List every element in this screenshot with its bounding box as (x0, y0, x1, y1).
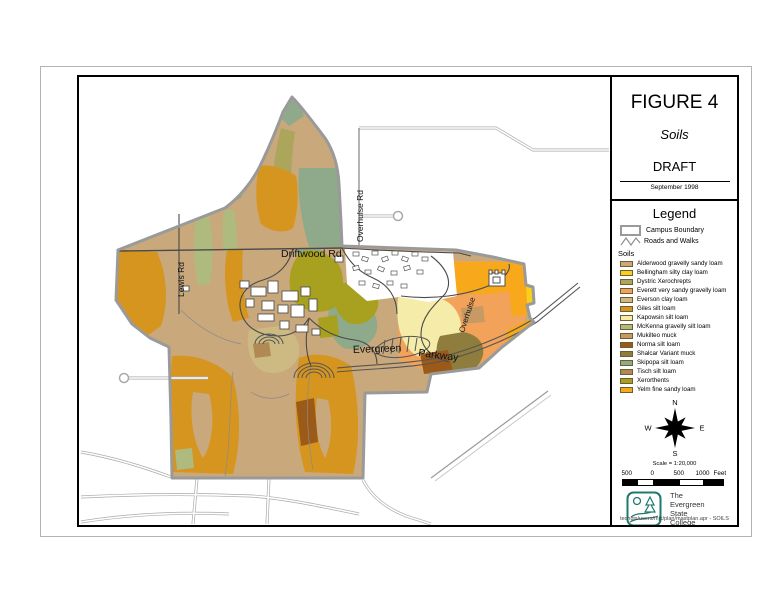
side-panel: FIGURE 4 Soils DRAFT September 1998 Lege… (610, 77, 737, 525)
legend-soil-label: Everson clay loam (637, 296, 688, 303)
logo-line: The (670, 491, 705, 500)
campus-boundary-label: Campus Boundary (646, 227, 704, 234)
legend-soil-swatch (620, 360, 633, 366)
housing-area (345, 249, 457, 302)
soil-patch-mckenna (223, 210, 238, 252)
legend-soil-swatch (620, 342, 633, 348)
legend-soil-row: Kapowsin silt loam (612, 313, 737, 322)
soil-patch-mckenna (194, 212, 212, 286)
date-divider (620, 181, 730, 182)
figure-subtitle: Soils (612, 127, 737, 142)
figure-date: September 1998 (612, 184, 737, 191)
legend-soil-swatch (620, 315, 633, 321)
legend-campus-boundary-row: Campus Boundary (612, 225, 737, 236)
soil-patch-mckenna (175, 448, 194, 470)
page-sheet: Driftwood Rd Overhulse Rd Lewis Rd Overh… (40, 66, 752, 537)
legend-soil-label: Tisch silt loam (637, 368, 676, 375)
legend-soil-label: Xerorthents (637, 377, 669, 384)
scalebar-label: 500 (622, 470, 633, 477)
soil-patch-giles (115, 250, 166, 336)
legend-soil-label: Alderwood gravelly sandy loam (637, 260, 723, 267)
legend-soil-swatch (620, 306, 633, 312)
legend-soil-row: Tisch silt loam (612, 367, 737, 376)
legend-soil-row: Norma silt loam (612, 340, 737, 349)
legend-block: Legend Campus Boundary Roads and Walks S… (612, 206, 737, 394)
legend-soil-label: Giles silt loam (637, 305, 676, 312)
soil-patch-giles (256, 165, 297, 231)
logo-line: Evergreen (670, 500, 705, 509)
scalebar-segments (622, 479, 724, 486)
legend-soil-swatch (620, 351, 633, 357)
legend-soil-swatch (620, 270, 633, 276)
legend-soil-row: Shalcar Variant muck (612, 349, 737, 358)
legend-soil-label: Yelm fine sandy loam (637, 386, 696, 393)
legend-soil-label: Kapowsin silt loam (637, 314, 688, 321)
campus-boundary-swatch (620, 225, 641, 236)
legend-soil-label: Dystric Xerochrepts (637, 278, 691, 285)
draft-status: DRAFT (612, 159, 737, 174)
legend-soil-label: Skipopa silt loam (637, 359, 684, 366)
legend-soil-label: Everett very sandy gravelly loam (637, 287, 726, 294)
compass-rose: N W E S (630, 396, 720, 458)
tower-icon (489, 270, 505, 286)
compass-e: E (699, 424, 704, 433)
soil-patch-yelm (509, 288, 529, 316)
legend-soil-swatch (620, 288, 633, 294)
legend-soil-row: Alderwood gravelly sandy loam (612, 259, 737, 268)
soils-map-svg: Driftwood Rd Overhulse Rd Lewis Rd Overh… (79, 77, 610, 525)
compass-n: N (672, 398, 677, 407)
scalebar-label: 1000 (696, 470, 710, 477)
label-evergreen: Evergreen (353, 342, 402, 356)
legend-soil-swatch (620, 369, 633, 375)
cul-de-sac (120, 374, 129, 383)
roads-zigzag-icon (620, 237, 641, 246)
figure-title: FIGURE 4 (612, 77, 737, 114)
legend-soil-swatch (620, 279, 633, 285)
scalebar-label: 500 (674, 470, 685, 477)
legend-soil-swatch (620, 387, 633, 393)
scalebar-unit: Feet (714, 470, 727, 477)
title-block: FIGURE 4 Soils DRAFT September 1998 (612, 77, 737, 201)
compass-s: S (672, 449, 677, 458)
soils-map: Driftwood Rd Overhulse Rd Lewis Rd Overh… (79, 77, 610, 525)
label-driftwood: Driftwood Rd (281, 248, 342, 260)
label-overhulse-rd: Overhulse Rd (355, 190, 365, 242)
legend-soil-row: Xerorthents (612, 376, 737, 385)
legend-soil-row: Bellingham silty clay loam (612, 268, 737, 277)
roads-walks-label: Roads and Walks (644, 238, 699, 245)
legend-soil-list: Alderwood gravelly sandy loam Bellingham… (612, 259, 737, 394)
legend-soil-swatch (620, 297, 633, 303)
legend-title: Legend (612, 206, 737, 221)
legend-soil-row: Dystric Xerochrepts (612, 277, 737, 286)
soil-patch-tisch (253, 342, 271, 358)
legend-soil-swatch (620, 261, 633, 267)
legend-soil-swatch (620, 378, 633, 384)
cul-de-sac (394, 212, 403, 221)
soil-patch-xerorthents (318, 315, 339, 338)
label-lewis-rd: Lewis Rd (176, 262, 186, 297)
legend-soil-row: Everett very sandy gravelly loam (612, 286, 737, 295)
scale-bar: 500 0 500 1000 Feet (622, 470, 728, 486)
source-path-text: techgis/users/mjk/plan/mastplan.apr - SO… (612, 516, 737, 522)
legend-soil-row: Giles silt loam (612, 304, 737, 313)
legend-soil-label: Mukilteo muck (637, 332, 677, 339)
legend-soil-label: McKenna gravelly silt loam (637, 323, 711, 330)
legend-soil-label: Shalcar Variant muck (637, 350, 695, 357)
legend-soil-swatch (620, 333, 633, 339)
legend-soil-swatch (620, 324, 633, 330)
legend-soil-row: Skipopa silt loam (612, 358, 737, 367)
legend-soil-row: Everson clay loam (612, 295, 737, 304)
legend-roads-row: Roads and Walks (612, 236, 737, 247)
soils-heading: Soils (612, 249, 737, 258)
scalebar-label: 0 (651, 470, 655, 477)
legend-soil-row: Yelm fine sandy loam (612, 385, 737, 394)
legend-soil-row: Mukilteo muck (612, 331, 737, 340)
legend-soil-row: McKenna gravelly silt loam (612, 322, 737, 331)
legend-soil-label: Norma silt loam (637, 341, 680, 348)
legend-soil-label: Bellingham silty clay loam (637, 269, 708, 276)
compass-block: N W E S (612, 396, 737, 463)
figure-frame: Driftwood Rd Overhulse Rd Lewis Rd Overh… (77, 75, 739, 527)
compass-w: W (644, 424, 652, 433)
